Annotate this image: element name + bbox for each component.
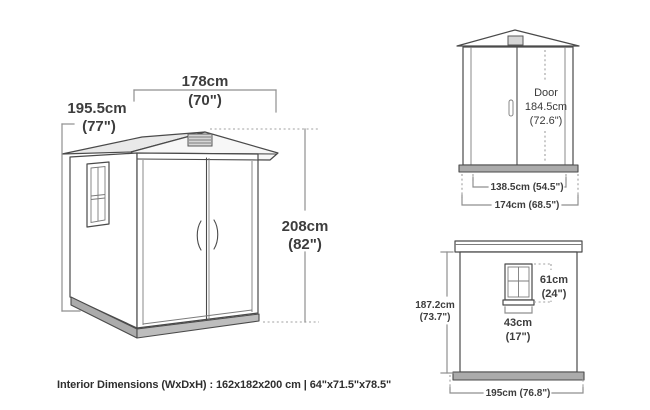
side-base: [453, 372, 584, 380]
main-depth-cm: 195.5cm: [67, 100, 126, 117]
front-roof: [457, 30, 579, 46]
roof-vent-icon: [188, 134, 212, 146]
door-label: Door: [534, 87, 558, 99]
dimension-door-width: 138.5cm (54.5"): [473, 174, 566, 193]
front-elevation-view: Door 184.5cm (72.6") 138.5cm (54.5") 174…: [457, 30, 579, 211]
door-height-in: (72.6"): [530, 115, 563, 127]
shed-dimension-diagram: 178cm (70") 195.5cm (77") 208cm (82"): [0, 0, 650, 410]
window-height-cm: 61cm: [540, 274, 568, 286]
main-isometric-view: 178cm (70") 195.5cm (77") 208cm (82"): [62, 73, 328, 338]
side-height-cm: 187.2cm: [415, 300, 455, 311]
shed-dimensions-svg: 178cm (70") 195.5cm (77") 208cm (82"): [0, 0, 650, 410]
main-height-in: (82"): [288, 236, 322, 253]
side-base-depth-value: 195cm (76.8"): [486, 388, 551, 399]
window-width-cm: 43cm: [504, 317, 532, 329]
front-vent-icon: [508, 36, 523, 45]
dimension-width: 178cm (70"): [134, 73, 276, 112]
side-height-in: (73.7"): [420, 312, 451, 323]
door-height-cm: 184.5cm: [525, 101, 567, 113]
main-height-cm: 208cm: [282, 218, 329, 235]
dimension-window-width: 43cm (17"): [504, 307, 532, 343]
dimension-side-height: 187.2cm (73.7"): [415, 252, 455, 373]
side-elevation-view: 61cm (24") 43cm (17") 187.2cm (73.7"): [415, 241, 584, 399]
front-base: [459, 165, 578, 172]
side-window-icon: [87, 162, 109, 227]
door-width-value: 138.5cm (54.5"): [490, 182, 563, 193]
interior-dimensions-text: Interior Dimensions (WxDxH) : 162x182x20…: [57, 379, 391, 391]
window-height-in: (24"): [542, 288, 567, 300]
side-roof: [455, 241, 582, 252]
main-depth-in: (77"): [82, 118, 116, 135]
side-elevation-window-icon: [503, 264, 534, 305]
window-width-in: (17"): [506, 331, 531, 343]
main-width-cm: 178cm: [182, 73, 229, 90]
front-base-width-value: 174cm (68.5"): [495, 200, 560, 211]
front-wall-doors: [137, 153, 258, 328]
main-width-in: (70"): [188, 92, 222, 109]
